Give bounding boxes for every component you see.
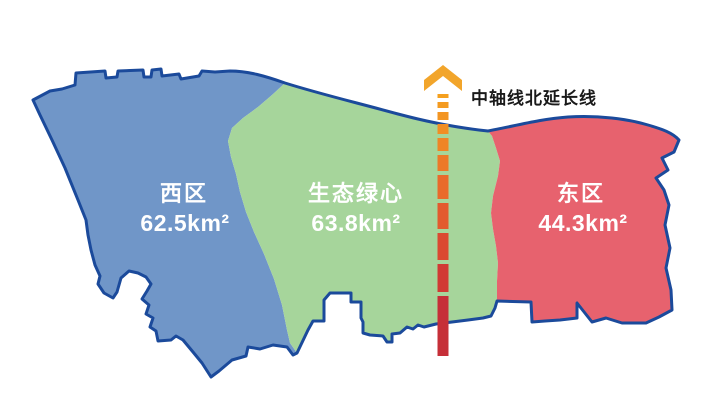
axis-segment (438, 94, 449, 98)
region-west-area: 62.5km² (140, 210, 229, 236)
axis-segment (438, 138, 449, 151)
region-green-heart-name: 生态绿心 (308, 181, 404, 206)
axis-segment (438, 155, 449, 171)
axis-segment (438, 264, 449, 292)
axis-label: 中轴线北延长线 (471, 88, 597, 108)
region-east-name: 东区 (557, 181, 605, 206)
axis-segment (438, 124, 449, 134)
axis-segment (438, 175, 449, 199)
axis-segment (438, 102, 449, 108)
axis-segment (438, 233, 449, 260)
region-east-area: 44.3km² (538, 210, 627, 236)
axis-segment (438, 296, 449, 356)
region-west-name: 西区 (160, 181, 208, 206)
axis-segment (438, 203, 449, 229)
map-svg: 中轴线北延长线 西区 62.5km² 生态绿心 63.8km² 东区 44.3k… (0, 0, 718, 407)
region-green-heart-area: 63.8km² (311, 210, 400, 236)
planning-map: 中轴线北延长线 西区 62.5km² 生态绿心 63.8km² 东区 44.3k… (0, 0, 718, 407)
axis-arrow-icon (424, 65, 462, 91)
axis-segment (438, 112, 449, 120)
